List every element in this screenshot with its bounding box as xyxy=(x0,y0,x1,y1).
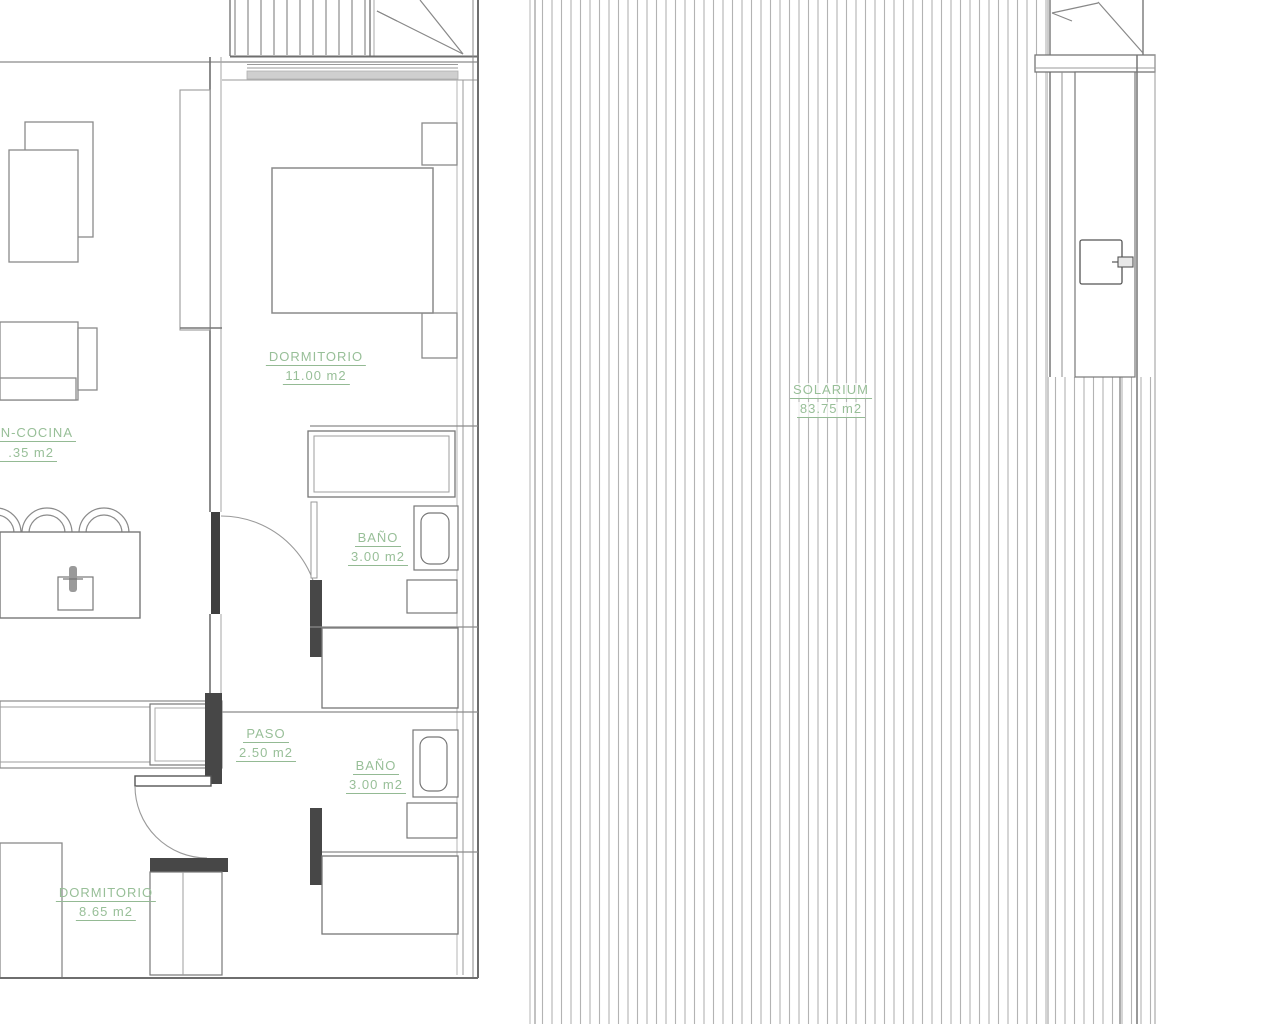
room-name: BAÑO xyxy=(353,759,400,775)
washbasin xyxy=(407,803,457,838)
room-label-salon-cocina: N-COCINA xyxy=(0,426,76,445)
toilet xyxy=(413,730,458,797)
door-leaf xyxy=(211,512,220,614)
salon-furniture xyxy=(0,122,140,618)
washbasin xyxy=(407,580,457,613)
shaft-wall xyxy=(1075,72,1135,377)
room-name: DORMITORIO xyxy=(266,350,366,366)
room-label-solarium: SOLARIUM 83.75 m2 xyxy=(790,383,872,421)
door-leaf xyxy=(135,776,211,786)
dormitorio1-furniture xyxy=(272,123,457,358)
room-area: 83.75 m2 xyxy=(797,402,865,418)
room-label-dormitorio-2: DORMITORIO 8.65 m2 xyxy=(56,886,156,924)
room-name: N-COCINA xyxy=(0,426,76,442)
kitchen-island xyxy=(0,508,140,618)
bar-stools xyxy=(0,508,129,533)
room-area: 11.00 m2 xyxy=(282,369,349,385)
hall-wall-band xyxy=(0,701,222,768)
closet xyxy=(308,431,455,497)
room-label-salon-cocina-area: .35 m2 xyxy=(0,446,57,465)
wall-pier xyxy=(310,580,322,657)
door-jamb xyxy=(311,502,317,578)
window-sill xyxy=(247,71,458,79)
room-name: BAÑO xyxy=(355,531,402,547)
room-area: .35 m2 xyxy=(0,446,57,462)
room-name: PASO xyxy=(243,727,288,743)
bed xyxy=(272,168,433,313)
nightstand xyxy=(422,313,457,358)
door-swing-arc xyxy=(135,786,207,858)
wardrobe xyxy=(180,90,210,330)
wardrobe-2 xyxy=(150,858,228,975)
room-label-bano-2: BAÑO 3.00 m2 xyxy=(346,759,406,797)
sofa xyxy=(0,322,97,400)
room-name: SOLARIUM xyxy=(790,383,872,399)
room-area: 3.00 m2 xyxy=(348,550,408,566)
door-swing-arc xyxy=(221,516,319,614)
floor-plan-drawing xyxy=(0,0,1280,1024)
wall-pier xyxy=(205,693,222,784)
bed-2 xyxy=(0,843,62,978)
room-label-bano-1: BAÑO 3.00 m2 xyxy=(348,531,408,569)
room-name: DORMITORIO xyxy=(56,886,156,902)
shower-tray xyxy=(322,856,458,934)
room-area: 8.65 m2 xyxy=(76,905,136,921)
staircase xyxy=(230,0,463,56)
room-label-paso: PASO 2.50 m2 xyxy=(236,727,296,765)
room-label-dormitorio-1: DORMITORIO 11.00 m2 xyxy=(266,350,366,388)
floor-plan-canvas: DORMITORIO 11.00 m2 N-COCINA .35 m2 BAÑO… xyxy=(0,0,1280,1024)
room-area: 2.50 m2 xyxy=(236,746,296,762)
nightstand xyxy=(422,123,457,165)
shower-tray xyxy=(322,628,458,708)
toilet xyxy=(414,506,458,570)
room-area: 3.00 m2 xyxy=(346,778,406,794)
armchair xyxy=(9,122,93,262)
wall-pier xyxy=(310,808,322,885)
